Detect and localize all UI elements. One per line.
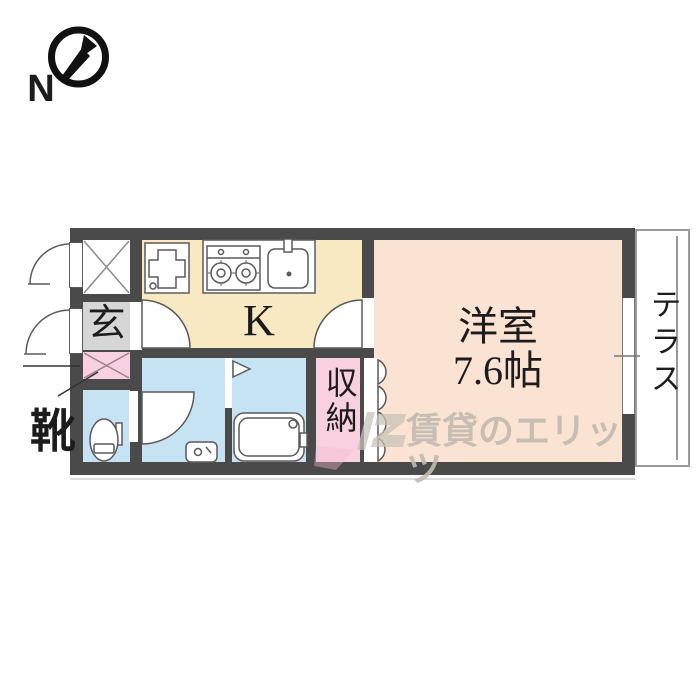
utility-door-arc	[28, 244, 70, 284]
room-bath	[232, 358, 306, 462]
shoes-label: 靴	[22, 408, 84, 456]
kitchen-label: K	[236, 298, 282, 344]
floor-plan: N テラス	[0, 0, 700, 700]
room-toilet	[83, 390, 130, 462]
door-leaf-utility	[69, 242, 83, 288]
shoe-cabinet	[83, 352, 130, 379]
entrance-label: 玄	[83, 305, 130, 345]
storage-label: 収納	[322, 366, 356, 436]
doorway-kitchen-main	[362, 298, 374, 348]
doorway-toilet	[129, 391, 138, 442]
doorway-entrance-kitchen	[130, 302, 142, 350]
door-leaf-entrance	[69, 308, 83, 354]
utility-box	[83, 240, 130, 294]
main-room-size: 7.6帖	[428, 350, 568, 392]
watermark-text: 賃貸のエリッツ	[406, 412, 626, 488]
doorway-bath	[225, 358, 232, 408]
terrace-label: テラス	[646, 288, 679, 399]
north-label: N	[20, 70, 62, 110]
room-washroom	[142, 358, 225, 462]
window-opening	[622, 298, 635, 414]
entrance-door-arc	[24, 310, 70, 354]
main-room-label: 洋室	[428, 306, 568, 348]
